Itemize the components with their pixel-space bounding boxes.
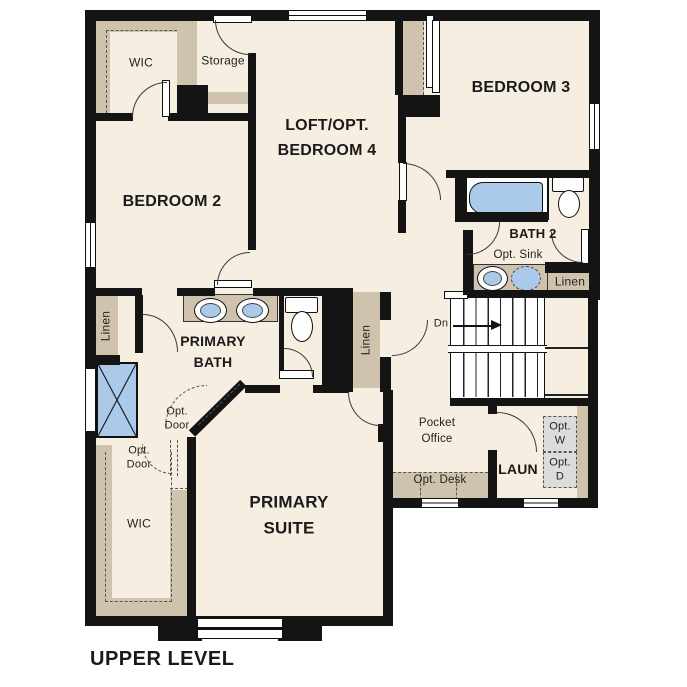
wall-segment — [467, 290, 598, 298]
label-linen-left: Linen — [98, 311, 115, 341]
label-opt-door-bath: Opt. Door — [165, 405, 190, 434]
window-pocket-office — [421, 498, 459, 508]
wall-suite-right — [383, 390, 393, 626]
wall-segment — [245, 385, 280, 393]
wall-exterior-left — [85, 10, 96, 626]
wall-segment — [177, 288, 215, 296]
wall-segment — [248, 53, 256, 250]
label-primary-bath: PRIMARY BATH — [180, 331, 245, 373]
wall-exterior-bottom-right — [385, 498, 598, 508]
window-bedroom2 — [85, 222, 96, 268]
wall-segment — [95, 113, 133, 121]
label-primary-suite: PRIMARY SUITE — [249, 490, 328, 543]
wic-lower-shelf-right — [170, 490, 188, 602]
wall-segment — [395, 12, 403, 95]
window-bedroom3 — [589, 103, 600, 150]
wic-lower-shelf-dash-top — [170, 488, 188, 490]
wall-segment — [313, 385, 348, 393]
label-bath2: BATH 2 — [509, 225, 556, 243]
wall-chase — [322, 288, 353, 392]
label-wic-lower: WIC — [127, 516, 151, 533]
label-laundry: LAUN — [498, 460, 538, 480]
wall-segment — [253, 288, 322, 296]
wall-exterior-right-lower — [588, 295, 598, 508]
bathtub-basin — [469, 182, 543, 214]
wall-segment — [187, 437, 196, 622]
window-primary-suite — [197, 618, 283, 639]
label-wic-upper: WIC — [129, 55, 153, 72]
label-loft: LOFT/OPT. BEDROOM 4 — [278, 114, 377, 164]
label-bedroom3: BEDROOM 3 — [472, 77, 571, 99]
wall-segment — [135, 295, 143, 353]
wall-segment — [488, 450, 497, 500]
label-linen-bath2: Linen — [555, 274, 585, 291]
wall-segment — [398, 117, 406, 163]
label-opt-sink: Opt. Sink — [493, 247, 542, 263]
floor-plan: WIC Storage LOFT/OPT. BEDROOM 4 BEDROOM … — [0, 0, 687, 687]
wall-segment — [455, 212, 548, 222]
wall-segment — [380, 357, 391, 392]
primary-sink-2 — [236, 298, 269, 323]
stairs-landing-rail — [448, 345, 547, 353]
page-title: UPPER LEVEL — [90, 648, 234, 671]
label-dn: Dn — [434, 316, 448, 331]
wic-storage-divider — [177, 12, 197, 86]
label-bedroom2: BEDROOM 2 — [123, 191, 222, 213]
window-loft — [288, 10, 367, 21]
bath2-opt-sink-dashed — [511, 266, 541, 291]
wall-exterior-right-upper — [589, 10, 600, 300]
label-opt-desk: Opt. Desk — [414, 472, 467, 488]
window-laundry — [523, 498, 559, 508]
bedroom3-closet — [403, 12, 424, 95]
label-opt-washer: Opt. W — [549, 420, 571, 448]
label-pocket-office: Pocket Office — [419, 415, 455, 447]
stairs-lower-run — [452, 353, 543, 397]
label-linen-hall: Linen — [358, 325, 375, 355]
label-storage: Storage — [201, 53, 244, 70]
primary-sink-1 — [194, 298, 227, 323]
label-opt-door-wic: Opt. Door — [127, 444, 152, 473]
label-opt-dryer: Opt. D — [549, 456, 571, 484]
stairs-edge-line-1 — [545, 347, 590, 349]
bath2-sink — [477, 266, 508, 291]
dn-arrow-head — [491, 320, 502, 330]
wall-segment — [398, 95, 440, 117]
wall-segment — [380, 292, 391, 320]
wall-segment — [446, 170, 598, 178]
dn-arrow-line — [453, 325, 493, 327]
wall-segment — [177, 85, 208, 117]
bay-window-pier-right — [278, 620, 322, 641]
wall-segment — [488, 400, 497, 414]
toilet-bath2-bowl — [558, 190, 580, 218]
bay-window-pier-left — [158, 620, 202, 641]
window-shower — [85, 368, 96, 432]
shower-x-icon — [98, 364, 136, 436]
wall-segment — [398, 200, 406, 233]
closet-slider-bedroom3-b — [432, 20, 440, 93]
toilet-wc-bowl — [291, 311, 313, 342]
shower — [96, 362, 138, 438]
stairs-edge-line-2 — [545, 394, 590, 396]
wall-segment — [450, 398, 598, 406]
